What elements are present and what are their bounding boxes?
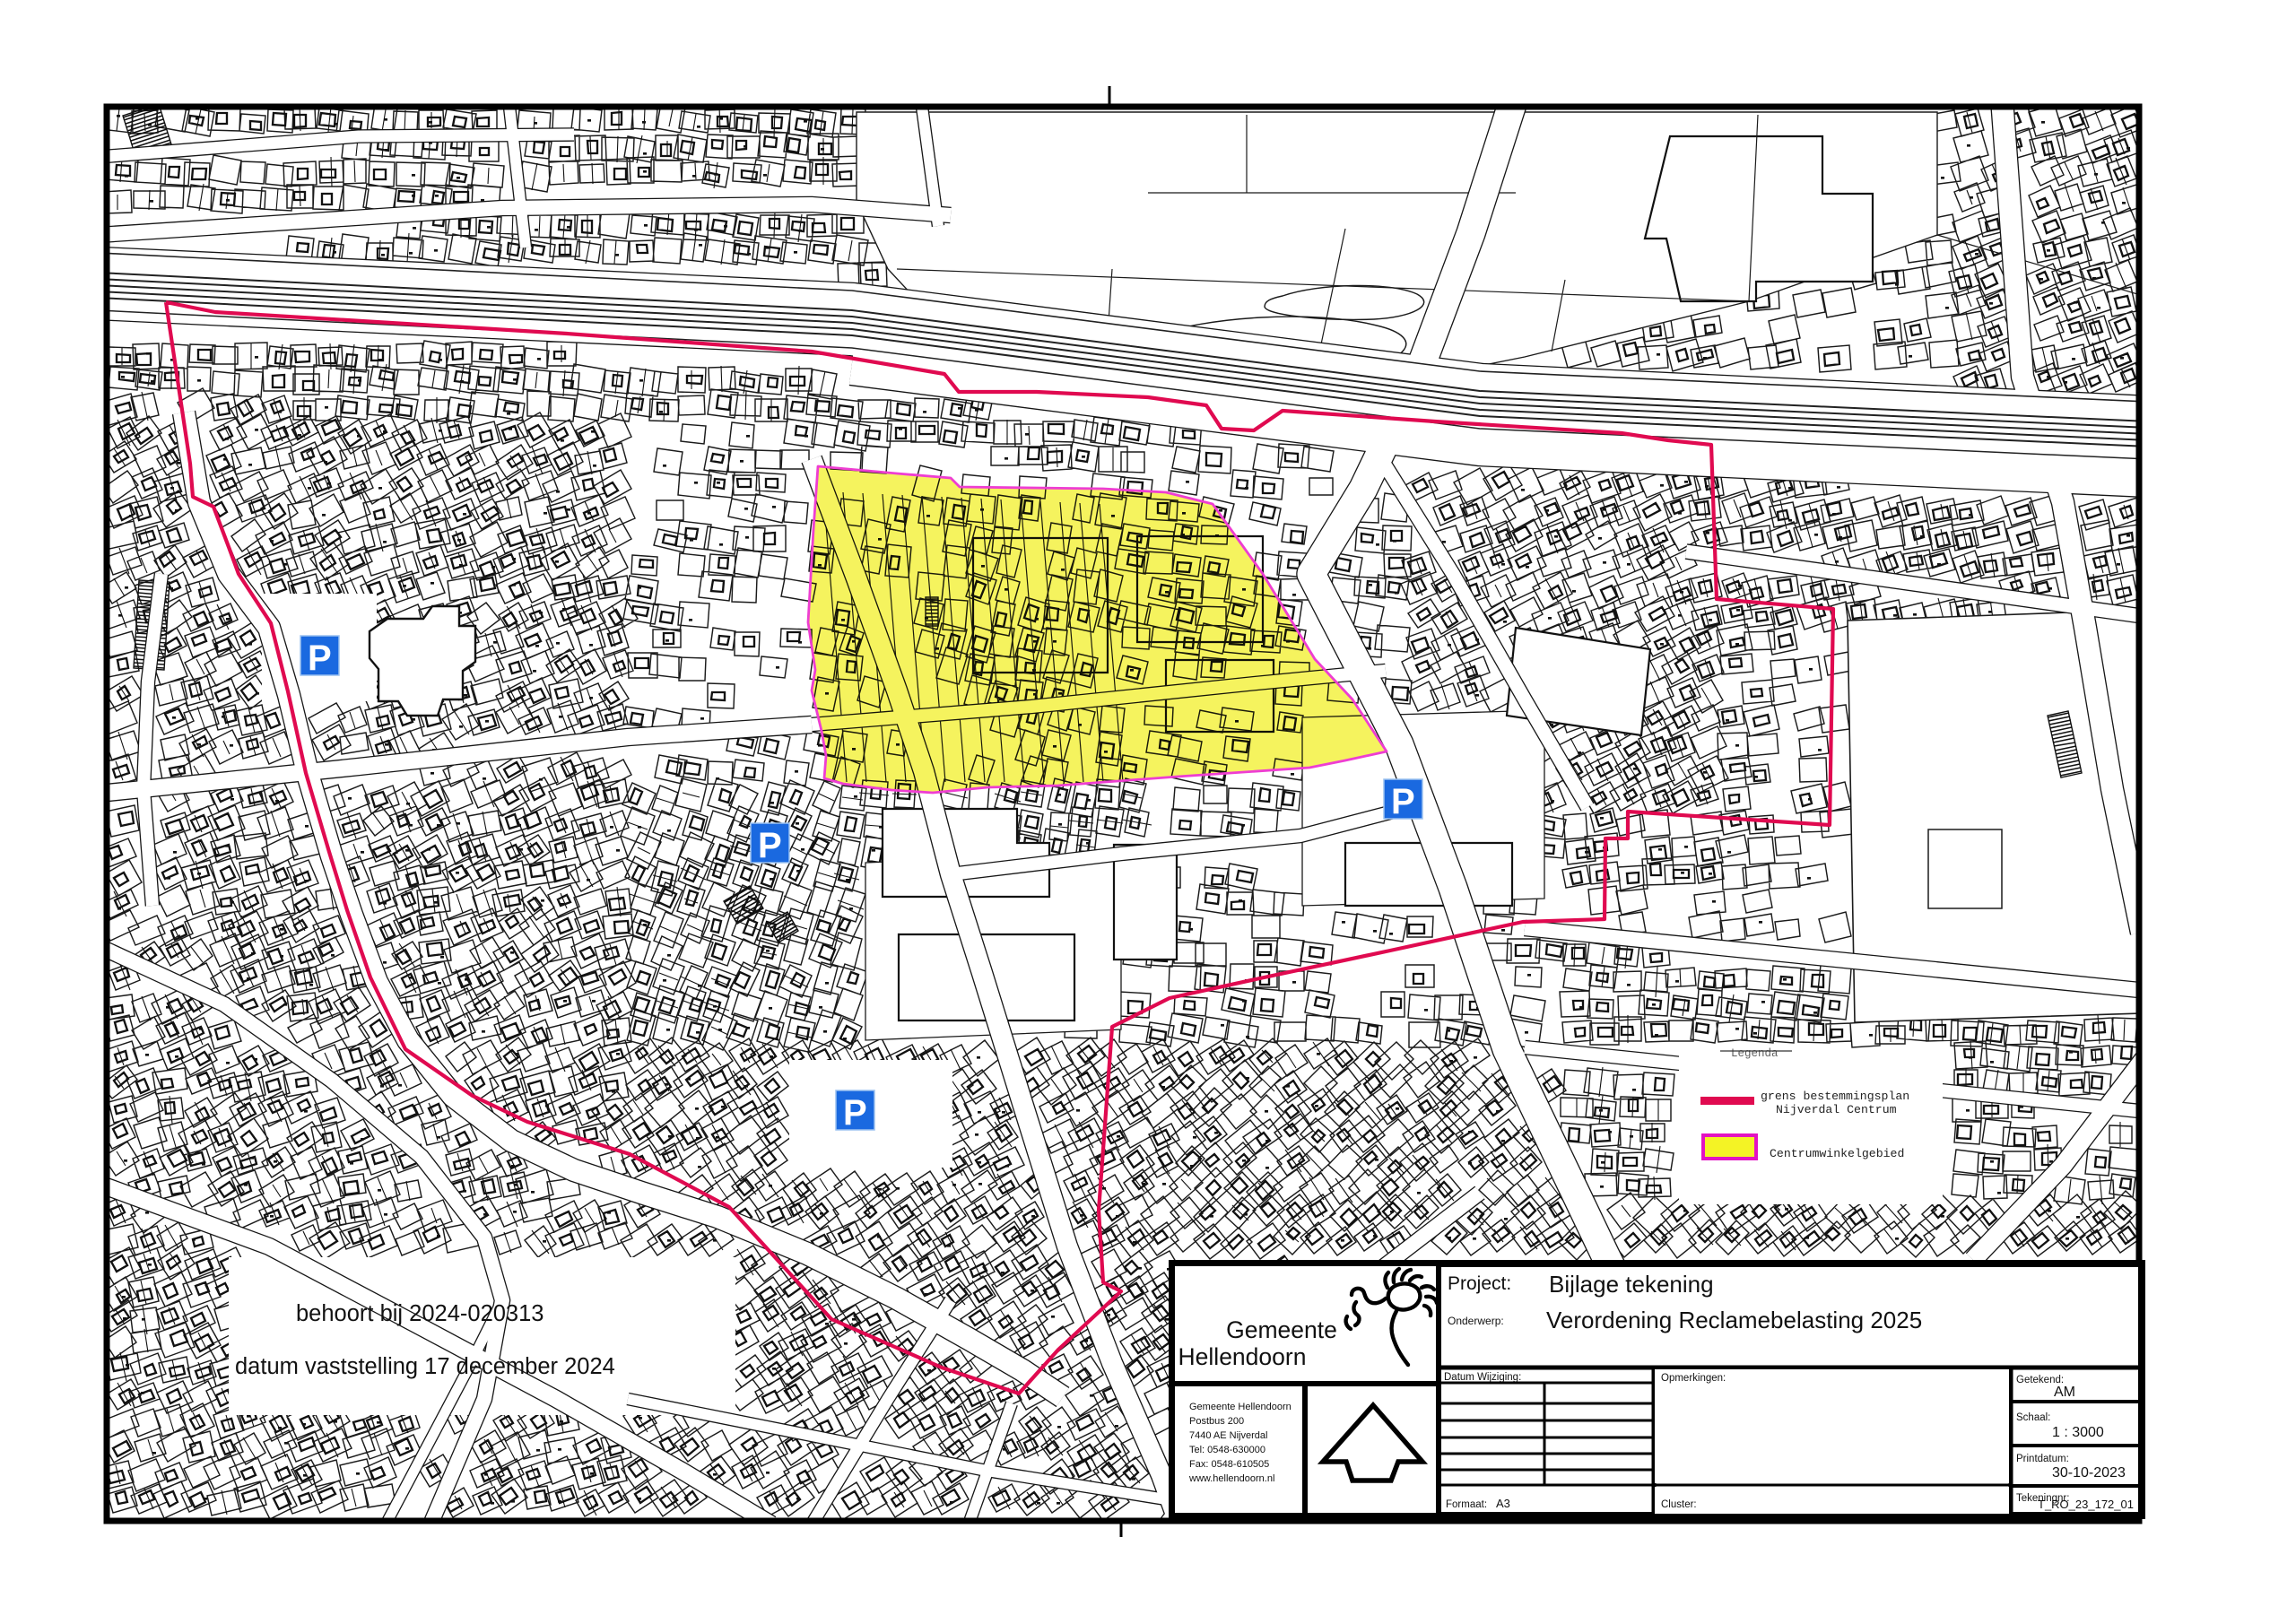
svg-text:P: P [308, 638, 332, 678]
svg-text:www.hellendoorn.nl: www.hellendoorn.nl [1188, 1473, 1274, 1484]
svg-text:P: P [1391, 782, 1415, 821]
svg-text:Project:: Project: [1448, 1273, 1511, 1294]
svg-text:T_RO_23_172_01: T_RO_23_172_01 [2038, 1498, 2134, 1511]
svg-text:Hellendoorn: Hellendoorn [1178, 1343, 1307, 1370]
svg-text:Onderwerp:: Onderwerp: [1448, 1315, 1504, 1327]
svg-text:Datum Wijziging:: Datum Wijziging: [1444, 1372, 1521, 1383]
svg-text:P: P [758, 826, 782, 865]
svg-text:Schaal:: Schaal: [2016, 1412, 2050, 1423]
svg-text:Bijlage tekening: Bijlage tekening [1549, 1271, 1714, 1298]
svg-text:A3: A3 [1496, 1497, 1510, 1510]
svg-text:behoort bij 2024-020313: behoort bij 2024-020313 [296, 1301, 544, 1326]
svg-text:30-10-2023: 30-10-2023 [2052, 1465, 2126, 1481]
svg-text:datum vaststelling 17 december: datum vaststelling 17 december 2024 [235, 1354, 615, 1379]
svg-text:Postbus 200: Postbus 200 [1189, 1416, 1244, 1427]
svg-text:AM: AM [2054, 1385, 2075, 1400]
svg-text:Opmerkingen:: Opmerkingen: [1661, 1373, 1726, 1384]
svg-text:Printdatum:: Printdatum: [2016, 1454, 2069, 1464]
svg-text:Gemeente: Gemeente [1226, 1316, 1337, 1343]
svg-text:Cluster:: Cluster: [1661, 1499, 1697, 1510]
svg-text:Gemeente Hellendoorn: Gemeente Hellendoorn [1189, 1402, 1291, 1412]
svg-text:7440 AE Nijverdal: 7440 AE Nijverdal [1189, 1430, 1267, 1441]
svg-text:grens bestemmingsplan: grens bestemmingsplan [1761, 1090, 1909, 1103]
svg-text:Tel: 0548-630000: Tel: 0548-630000 [1189, 1445, 1265, 1455]
svg-text:1 : 3000: 1 : 3000 [2052, 1425, 2104, 1440]
svg-text:Formaat:: Formaat: [1446, 1499, 1487, 1510]
svg-text:P: P [843, 1093, 867, 1133]
svg-text:Nijverdal Centrum: Nijverdal Centrum [1776, 1103, 1897, 1116]
svg-text:Fax: 0548-610505: Fax: 0548-610505 [1189, 1459, 1269, 1470]
svg-text:Legenda: Legenda [1731, 1047, 1779, 1060]
svg-text:Centrumwinkelgebied: Centrumwinkelgebied [1770, 1147, 1904, 1160]
svg-text:Verordening Reclamebelasting 2: Verordening Reclamebelasting 2025 [1546, 1307, 1922, 1333]
